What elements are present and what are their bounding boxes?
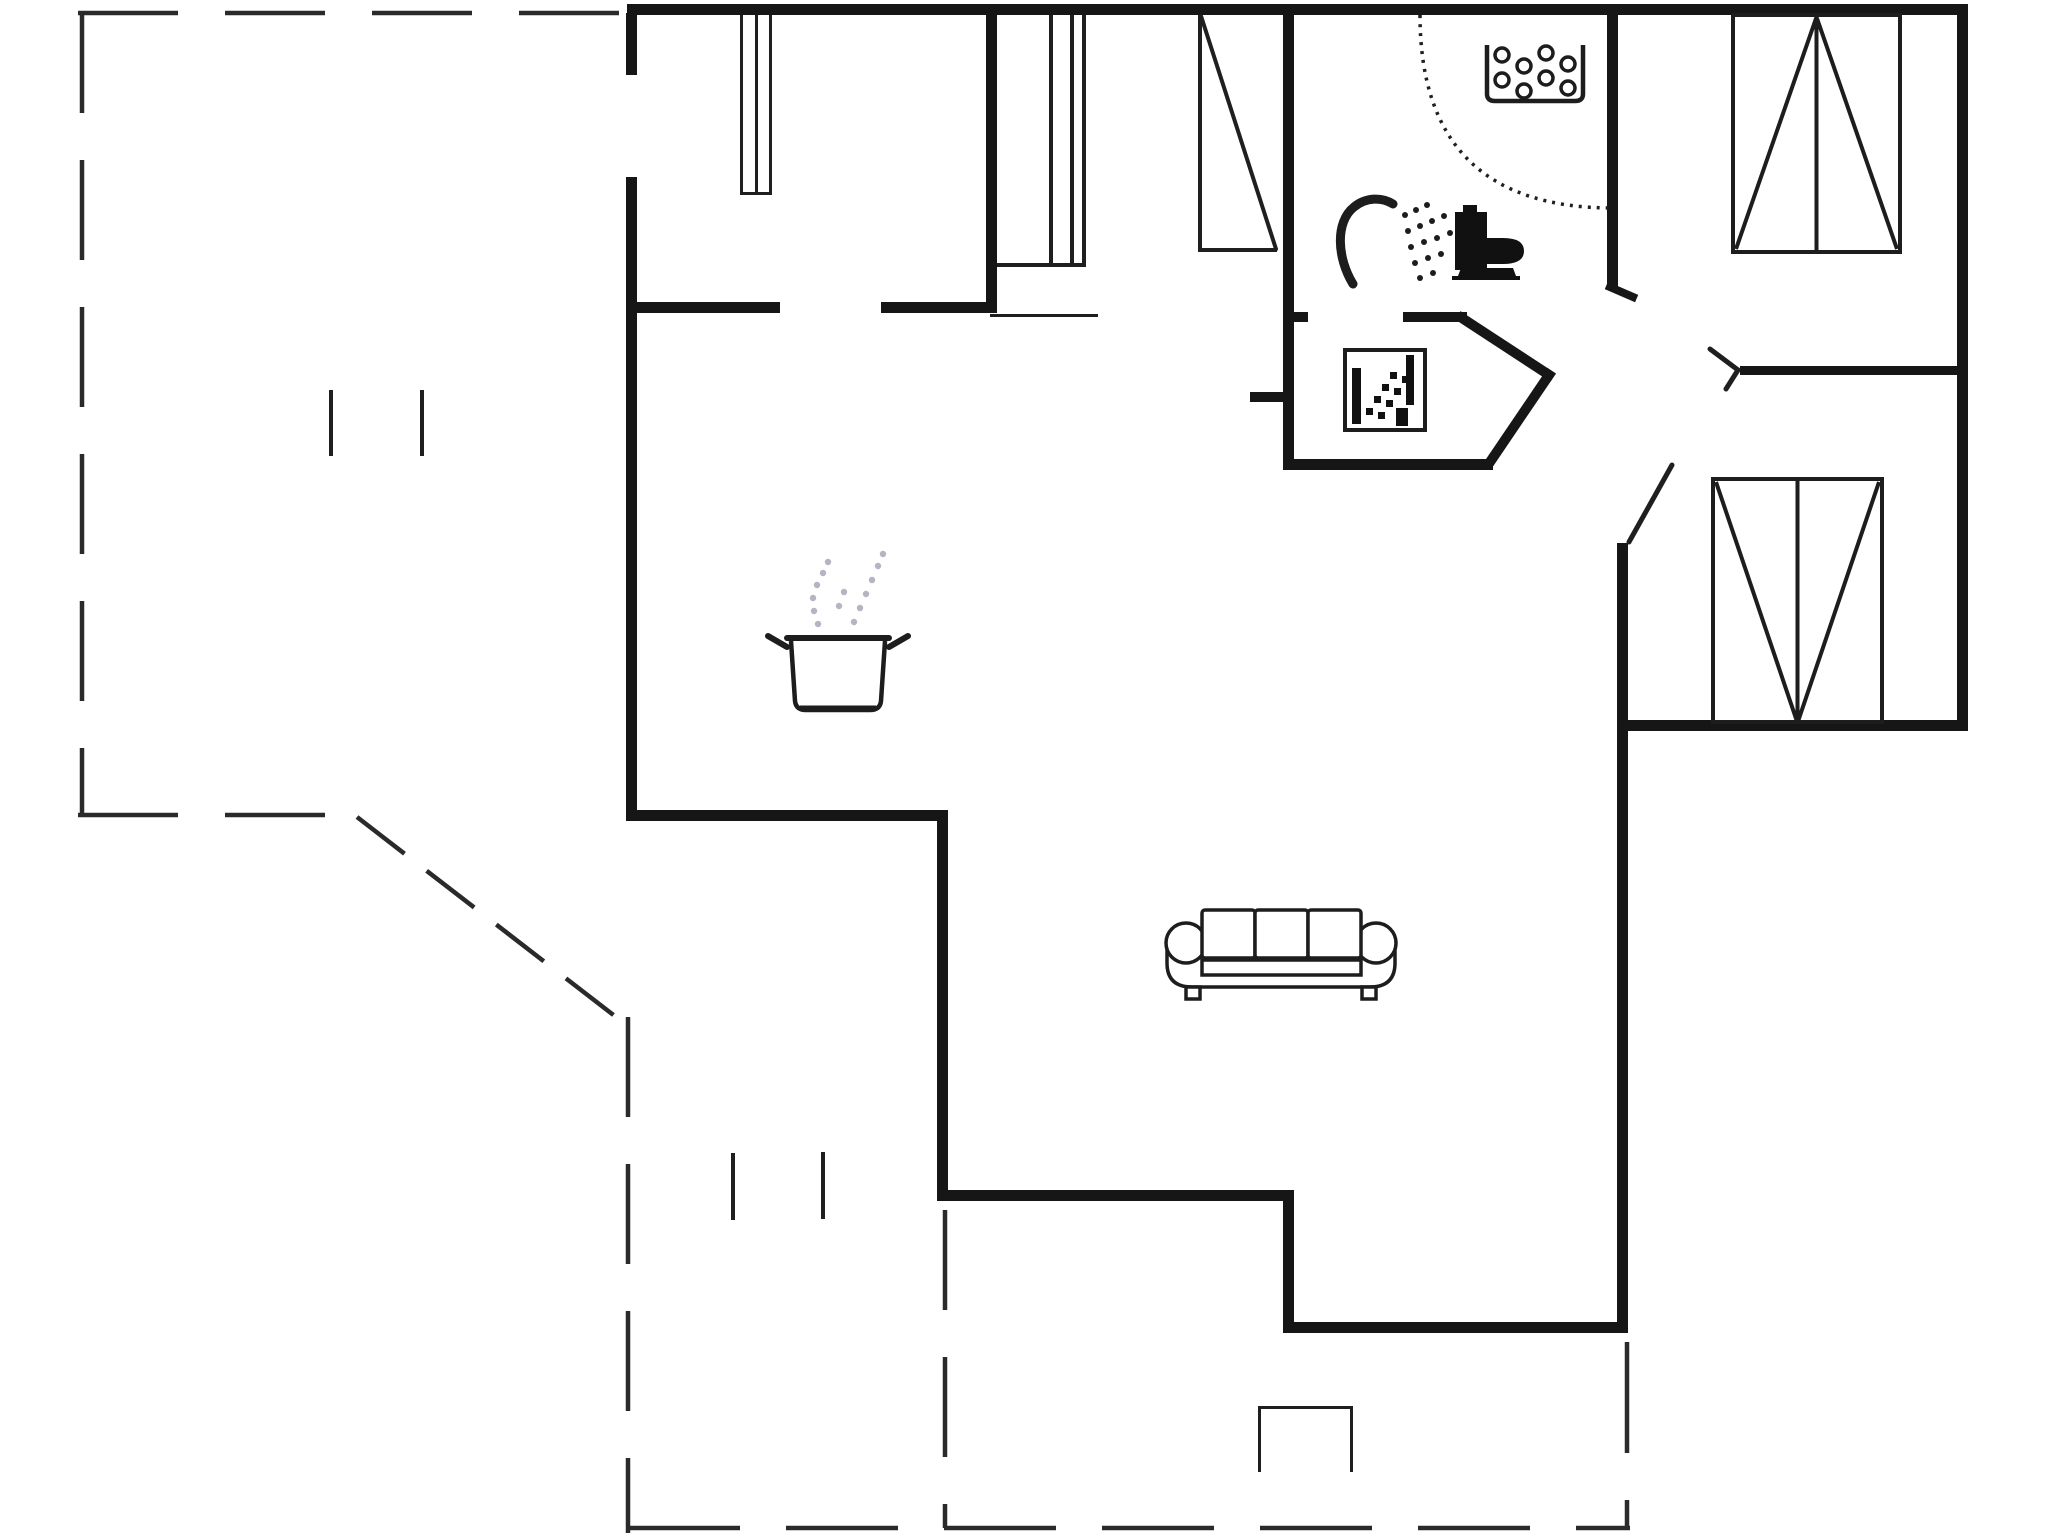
terrace-step-left [1258, 1406, 1261, 1472]
room-cupboard-right [769, 15, 772, 194]
living-right-exterior-wall [1617, 543, 1628, 1333]
toilet-base [1458, 268, 1516, 276]
terrace-step-top [1258, 1406, 1353, 1409]
right-exterior-wall [1957, 4, 1968, 731]
bathroom-right-wall-end-stub [1610, 287, 1633, 297]
sofa-cushion-3 [1308, 910, 1361, 958]
entry-partition-wall [986, 13, 997, 313]
terrace-step-right [1350, 1406, 1353, 1472]
hall-niche-stub-lower [1250, 392, 1283, 402]
bedroom2-wardrobe-icon [1713, 479, 1882, 722]
kitchen-bottom-exterior-wall [626, 810, 948, 821]
washbasin-bar-left [1352, 368, 1361, 424]
room-cupboard-left [740, 15, 743, 194]
bedroom1-wardrobe-icon-diag-right [1817, 17, 1898, 249]
sofa-cushion-1 [1202, 910, 1255, 958]
shower-icon [1340, 199, 1453, 284]
kitchen-partition-wall-left [637, 302, 780, 313]
sofa-seat-front [1202, 960, 1361, 975]
bedroom1-door-leaf-b [1726, 370, 1738, 389]
bathroom-left-wall [1283, 13, 1294, 470]
shower-hose [1340, 199, 1393, 284]
terrace-post-b [420, 390, 424, 456]
spa-jet-3 [1517, 59, 1531, 73]
toilet-bowl [1487, 238, 1524, 264]
toilet-base-line [1452, 276, 1520, 280]
entrance-door-edge [1198, 15, 1202, 252]
spa-jet-2 [1539, 46, 1553, 60]
bedroom2-door-leaf [1629, 465, 1672, 542]
terrace-post-c [731, 1153, 735, 1220]
bedroom2-wardrobe-icon-diag-right [1799, 482, 1880, 720]
hall-chamfer-wall-upper [1462, 318, 1549, 375]
living-left-exterior-wall [937, 816, 948, 1201]
entry-cupboard-right [1082, 15, 1086, 267]
spa-jet-1 [1495, 48, 1509, 62]
living-bottom-exterior-wall [1283, 1322, 1628, 1333]
living-left-lower-exterior-wall [1283, 1196, 1294, 1333]
shower-spray-dots [1402, 202, 1453, 281]
entry-threshold-line [990, 314, 1098, 317]
floor-plan-svg [0, 0, 2048, 1536]
cooking-pot-icon [768, 551, 908, 710]
terrace-post-a [329, 390, 333, 456]
room-cupboard-mid [755, 15, 758, 194]
living-bottomleft-exterior-wall [948, 1190, 1294, 1201]
toilet-tank [1455, 212, 1487, 270]
washbasin-block [1396, 408, 1408, 426]
bathroom-door-swing-arc [1420, 15, 1613, 208]
spa-jet-8 [1561, 81, 1575, 95]
toilet-icon [1452, 205, 1524, 280]
room-cupboard-bottom [740, 192, 772, 195]
spa-jet-6 [1539, 71, 1553, 85]
entrance-door-bottom [1199, 248, 1277, 252]
hall-niche-stub-upper [1288, 312, 1308, 322]
spa-bath-icon [1487, 45, 1583, 101]
pot-body [791, 641, 885, 710]
bedroom1-wardrobe-icon-diag-left [1736, 17, 1817, 249]
bedroom-divider-wall [1740, 366, 1957, 375]
spa-jet-4 [1561, 57, 1575, 71]
bedroom1-wardrobe-icon [1733, 15, 1900, 252]
sofa-arm-left [1166, 923, 1206, 963]
bathroom-right-wall [1607, 13, 1618, 288]
entrance-door-leaf-diagonal [1201, 16, 1276, 249]
entry-cupboard-inner-a [1049, 15, 1053, 267]
kitchen-left-exterior-wall [626, 177, 637, 821]
terrace-post-d [821, 1152, 825, 1219]
kitchen-left-wall-stub [626, 13, 637, 75]
hall-chamfer-wall-lower [1490, 375, 1549, 462]
spa-jet-5 [1495, 73, 1509, 87]
sofa-foot-left [1186, 987, 1200, 999]
terrace-boundary-diagonal [357, 817, 616, 1017]
bedroom1-door-leaf-a [1710, 349, 1738, 370]
floor-plan-page [0, 0, 2048, 1536]
washbasin-icon [1345, 350, 1425, 430]
sofa-cushion-2 [1255, 910, 1308, 958]
bathroom-bottom-wall [1283, 459, 1493, 470]
spa-jet-7 [1517, 84, 1531, 98]
steam-dots-icon [810, 551, 886, 627]
bedroom2-wardrobe-icon-diag-left [1716, 482, 1797, 720]
entry-cupboard-inner-b [1070, 15, 1074, 267]
sofa-icon [1166, 910, 1396, 999]
sofa-foot-right [1362, 987, 1376, 999]
kitchen-partition-wall-right [881, 302, 990, 313]
